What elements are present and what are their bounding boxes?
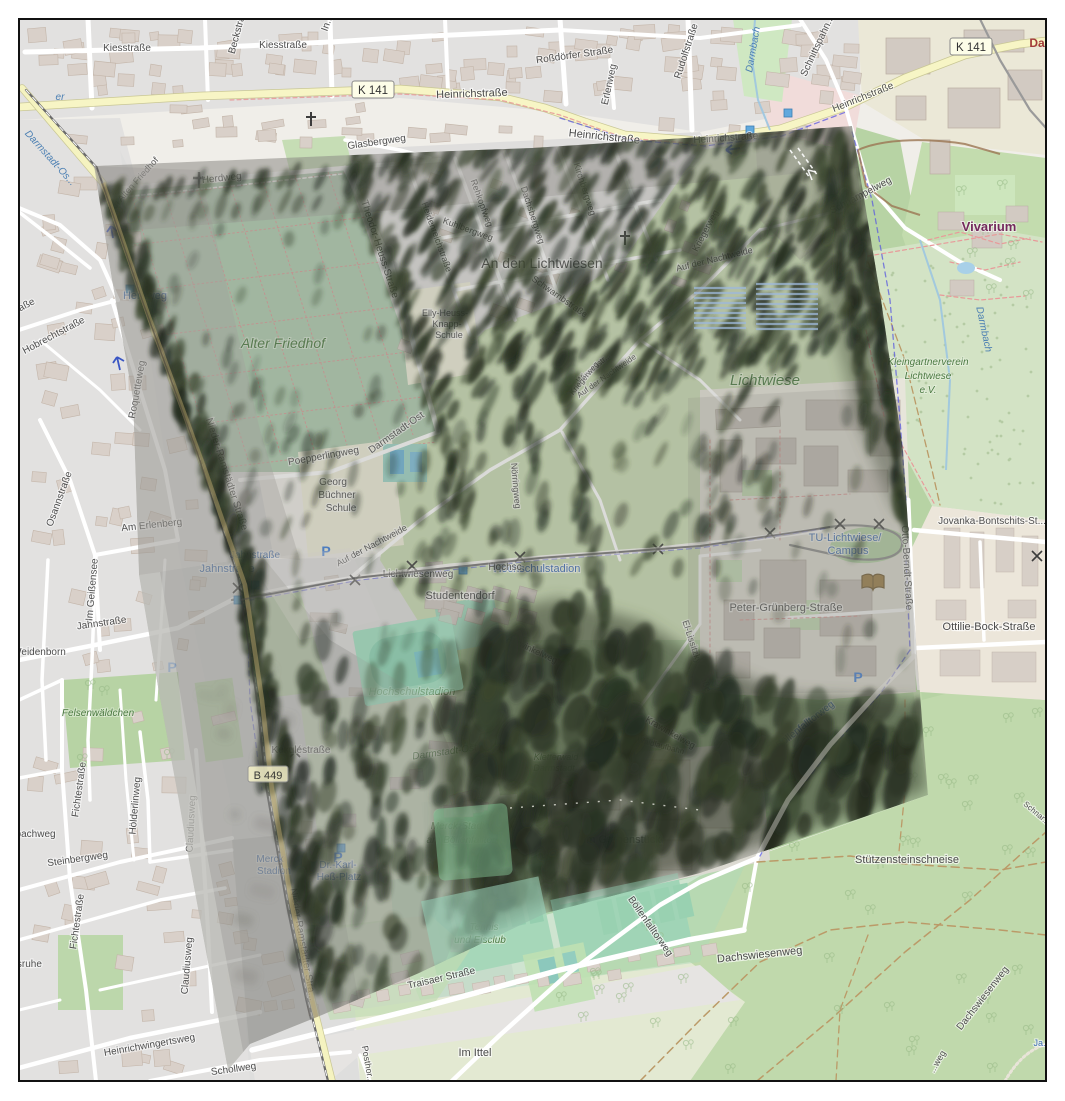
svg-text:K 141: K 141 xyxy=(956,42,986,54)
svg-text:Jovanka-Bontschits-St...: Jovanka-Bontschits-St... xyxy=(938,516,1046,527)
svg-text:Vivarium: Vivarium xyxy=(962,219,1017,234)
svg-text:Felsenwäldchen: Felsenwäldchen xyxy=(62,708,135,719)
svg-text:Kleingartnerverein: Kleingartnerverein xyxy=(887,357,969,368)
svg-text:er: er xyxy=(56,92,66,103)
svg-text:Lichtwiese: Lichtwiese xyxy=(905,371,952,382)
svg-text:Weidenborn: Weidenborn xyxy=(12,647,66,658)
svg-text:Ottilie-Bock-Straße: Ottilie-Bock-Straße xyxy=(943,621,1036,633)
svg-text:K 141: K 141 xyxy=(358,85,388,97)
svg-text:Kiesstraße: Kiesstraße xyxy=(103,43,151,54)
svg-text:Heinrichstraße: Heinrichstraße xyxy=(436,87,508,101)
svg-text:e.V.: e.V. xyxy=(919,385,936,396)
svg-text:Stützensteinschneise: Stützensteinschneise xyxy=(855,854,959,866)
svg-text:Kiesstraße: Kiesstraße xyxy=(259,40,307,51)
svg-text:B 449: B 449 xyxy=(254,770,283,782)
svg-text:Im Ittel: Im Ittel xyxy=(458,1047,491,1059)
